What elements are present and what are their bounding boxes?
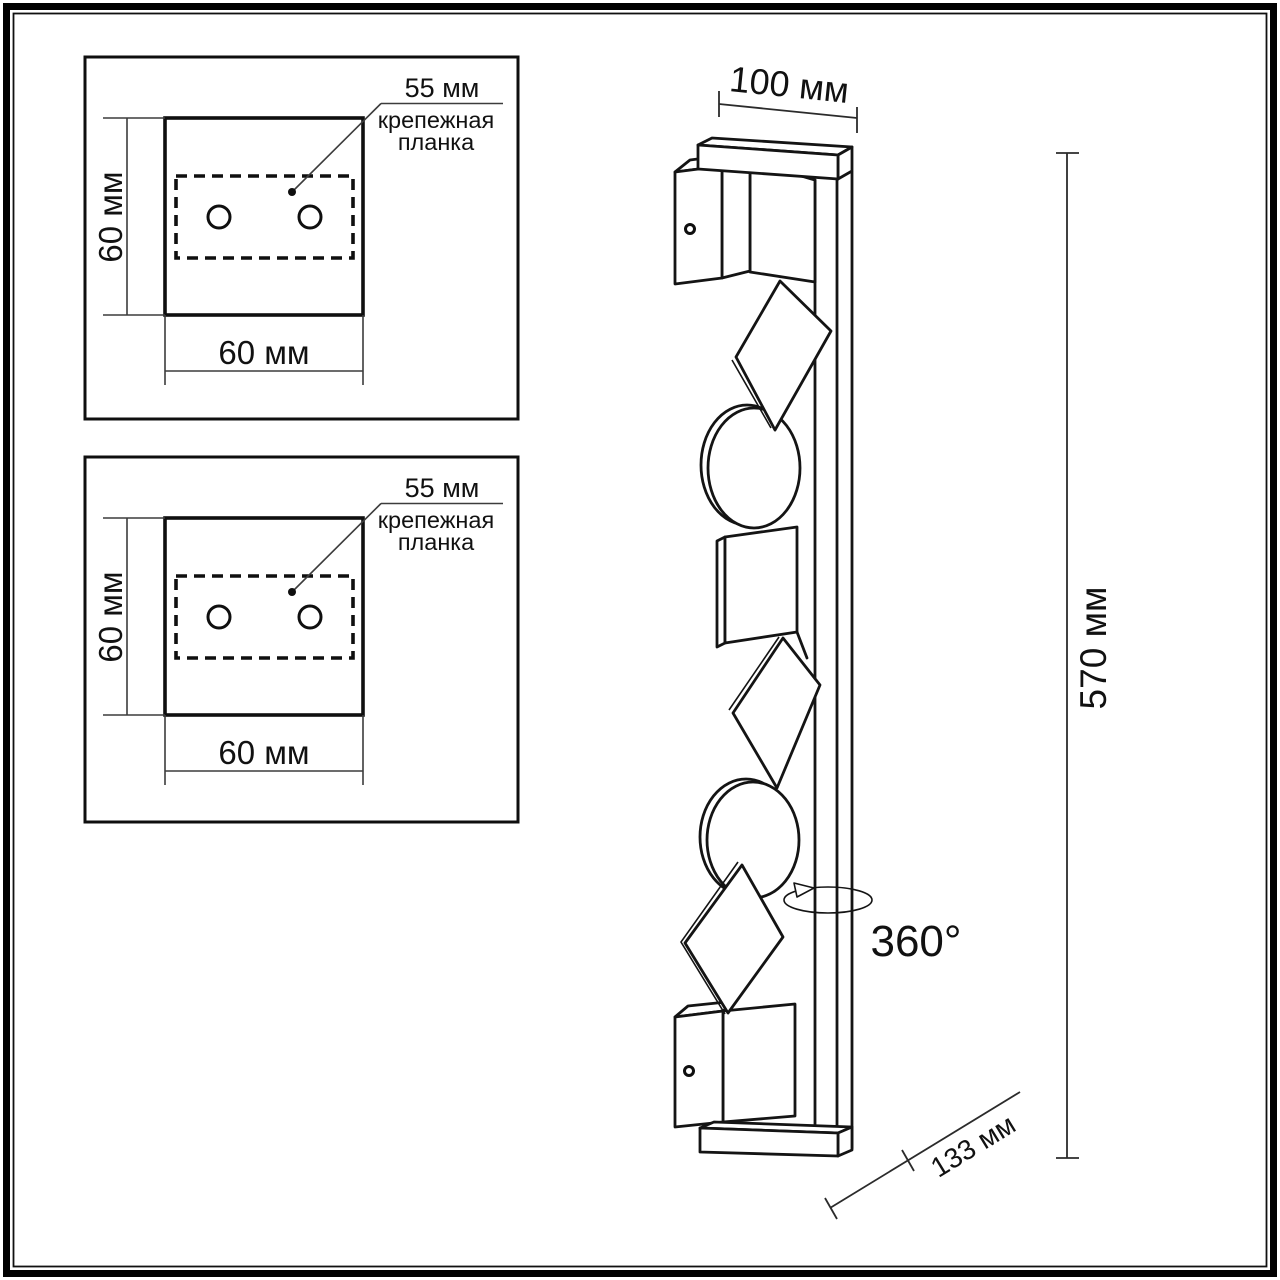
- screw-hole-right: [299, 206, 321, 228]
- fixture-side-view: 360° 100 мм 570 мм 133 мм: [675, 58, 1114, 1219]
- screw-hole-right: [299, 606, 321, 628]
- bottom-mounting-box: [675, 1001, 795, 1127]
- rotation-arrow-icon: [794, 883, 814, 897]
- square-height-label: 60 мм: [92, 171, 129, 262]
- square-width-label: 60 мм: [218, 334, 309, 371]
- square-plate: [717, 527, 807, 658]
- installation-diagram: 55 мм крепежная планка 60 мм 60 мм 55 мм…: [0, 0, 1280, 1280]
- screw-hole-left: [208, 606, 230, 628]
- box-screw-hole: [685, 1067, 694, 1076]
- leader-dot: [288, 188, 296, 196]
- back-bar: [815, 172, 852, 1148]
- height-label: 570 мм: [1073, 587, 1114, 710]
- square-height-label: 60 мм: [92, 571, 129, 662]
- plate-width-label: 55 мм: [405, 473, 480, 503]
- dimension-top-width: 100 мм: [719, 58, 857, 133]
- mounting-plate-panel-top: 55 мм крепежная планка 60 мм 60 мм: [85, 57, 518, 419]
- dimension-height: 570 мм: [1056, 153, 1114, 1158]
- diamond-plate-2: [729, 637, 820, 788]
- top-bracket-plate: [750, 161, 815, 282]
- rotation-indicator: 360°: [784, 883, 962, 966]
- square-width-label: 60 мм: [218, 734, 309, 771]
- top-mounting-box: [675, 154, 750, 284]
- screw-hole-left: [208, 206, 230, 228]
- plate-caption-2: планка: [398, 129, 475, 155]
- rotation-label: 360°: [870, 917, 961, 966]
- leader-dot: [288, 588, 296, 596]
- circle-plate-1: [701, 405, 800, 528]
- plate-width-label: 55 мм: [405, 73, 480, 103]
- plate-caption-2: планка: [398, 529, 475, 555]
- bottom-slab: [700, 1122, 852, 1156]
- top-width-label: 100 мм: [728, 58, 851, 111]
- mounting-plate-panel-bottom: 55 мм крепежная планка 60 мм 60 мм: [85, 457, 518, 822]
- box-screw-hole: [686, 225, 695, 234]
- dimension-depth: 133 мм: [825, 1092, 1021, 1219]
- technical-drawing-page: 55 мм крепежная планка 60 мм 60 мм 55 мм…: [0, 0, 1280, 1280]
